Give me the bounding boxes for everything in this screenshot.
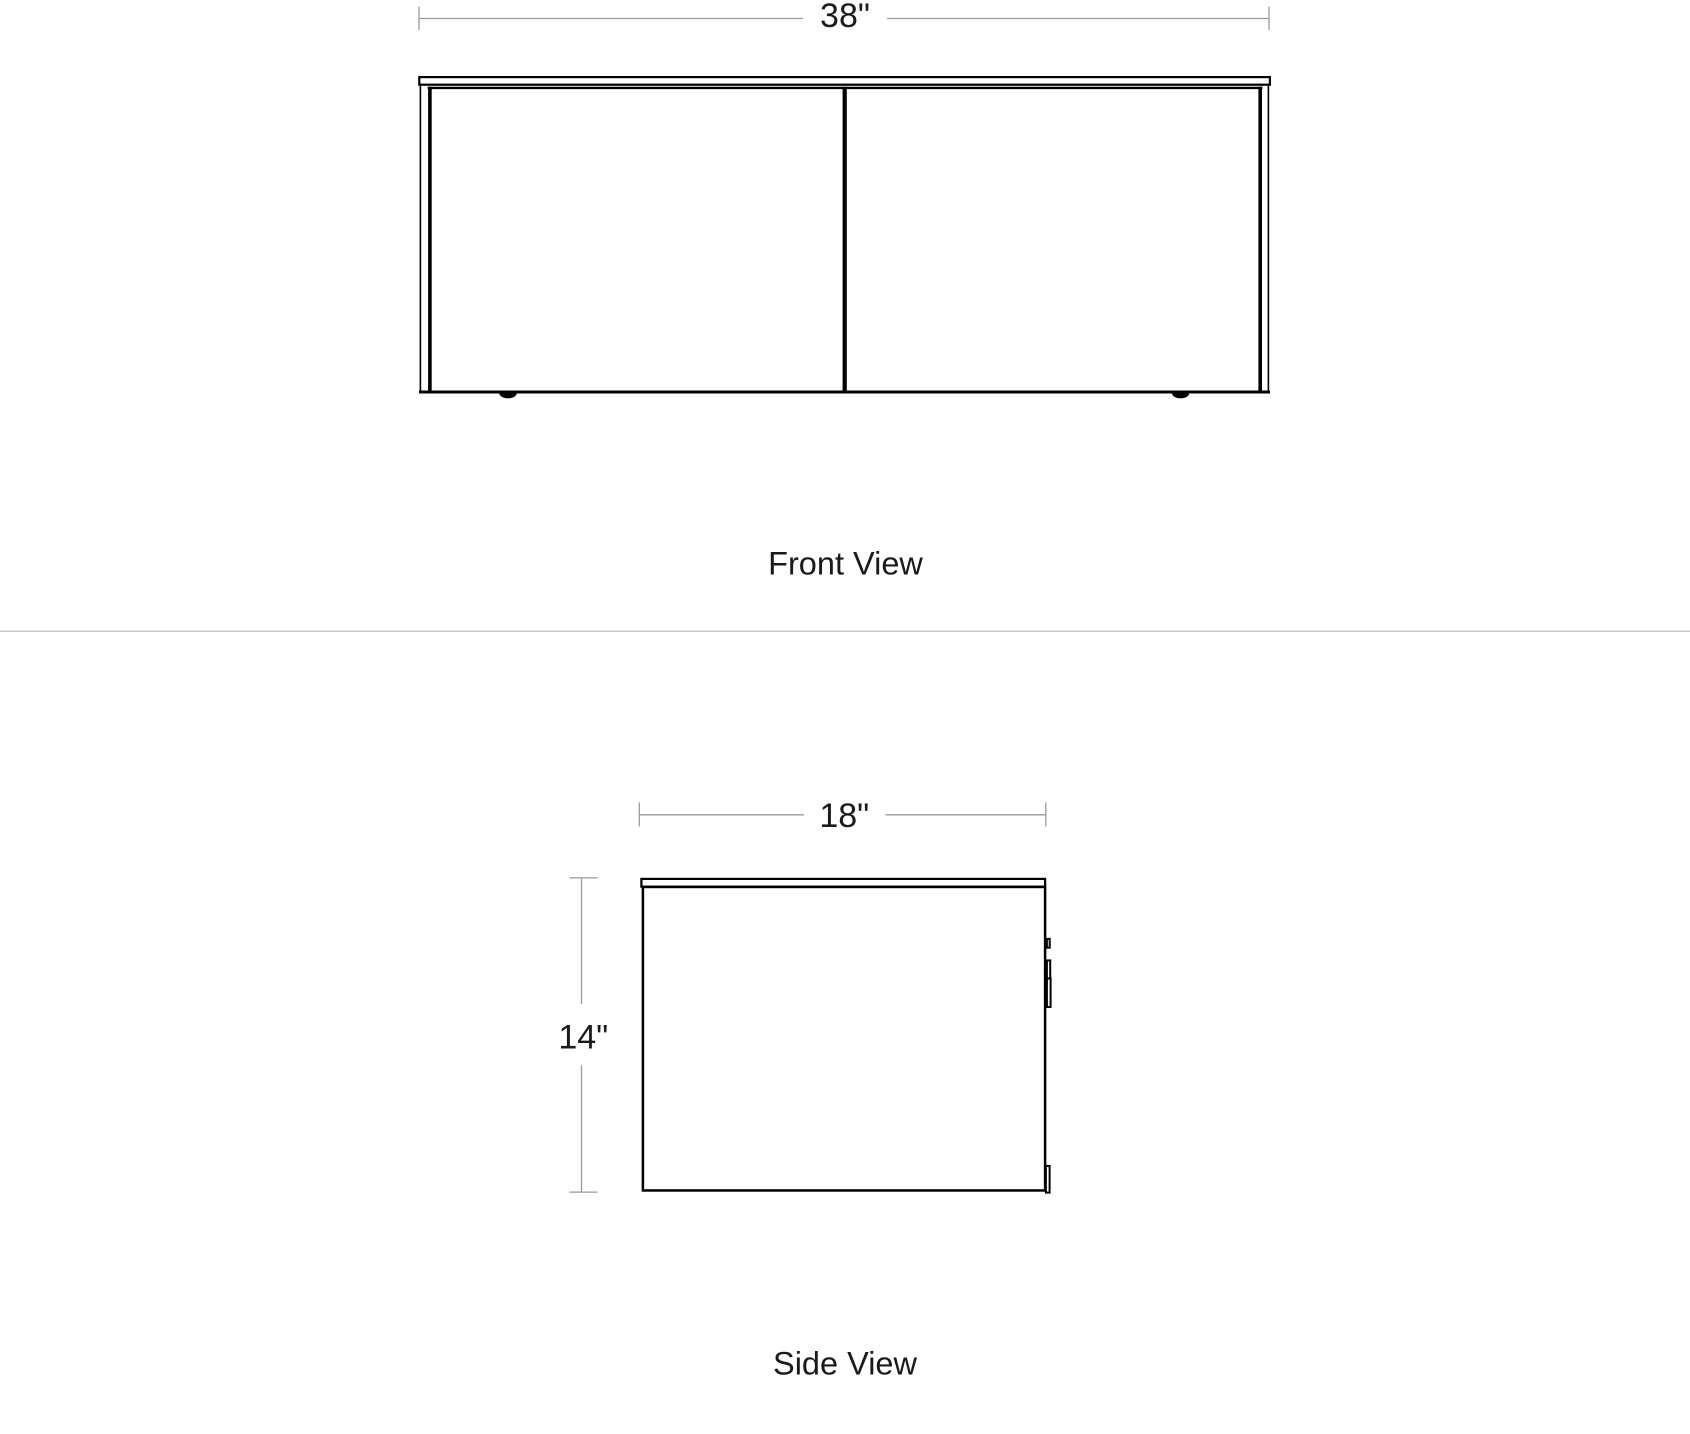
svg-text:14": 14" (558, 1018, 608, 1056)
svg-text:Front View: Front View (768, 546, 923, 582)
svg-text:38": 38" (820, 0, 870, 35)
svg-text:18": 18" (819, 797, 869, 835)
svg-text:Side View: Side View (773, 1346, 917, 1382)
